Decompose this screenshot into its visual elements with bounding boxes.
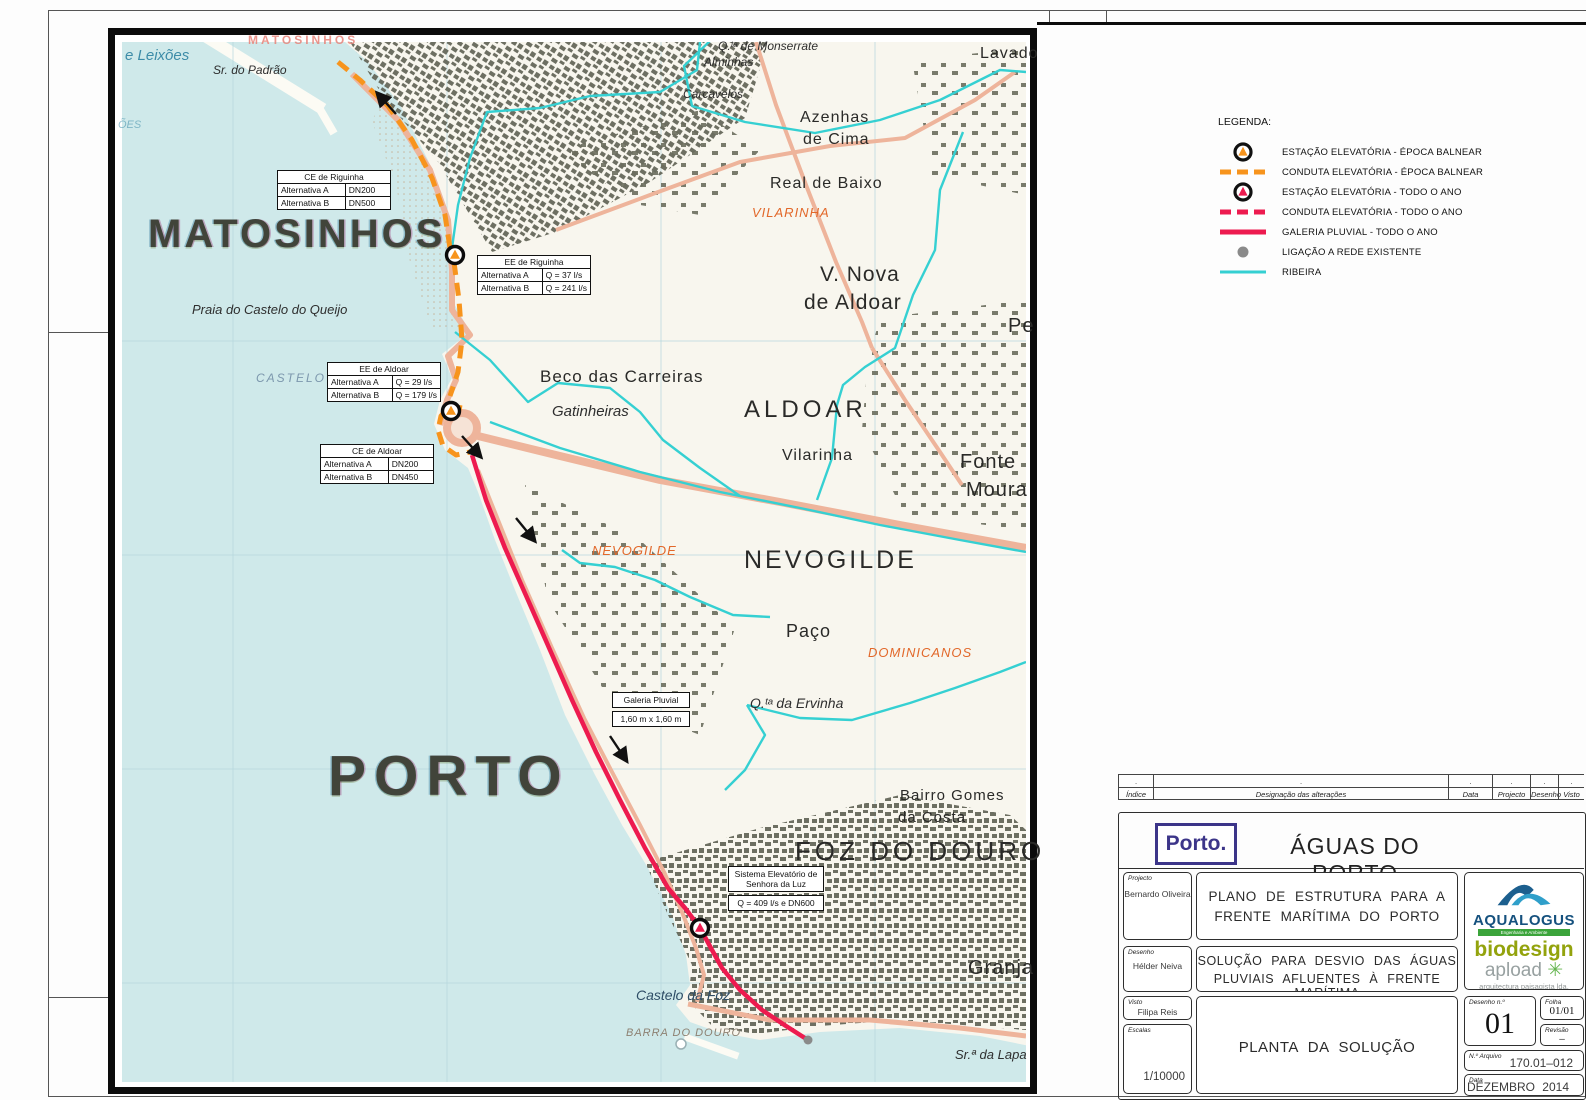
legend: LEGENDA: ESTAÇÃO ELEVATÓRIA - ÉPOCA BALN… [1218, 116, 1483, 282]
callout-key: Alternativa B [278, 197, 346, 210]
stream-icon [1218, 269, 1268, 275]
callout-title: EE de Aldoar [328, 363, 441, 376]
arquivo-value: 170.01–012 [1510, 1056, 1573, 1070]
callout-table: CE de RiguinhaAlternativa ADN200Alternat… [277, 170, 391, 210]
fold-mark-upper [48, 332, 108, 333]
aqualogus-logo: AQUALOGUS [1465, 913, 1583, 928]
map-label: Beco das Carreiras [540, 368, 704, 385]
main-title-line2: FRENTE MARÍTIMA DO PORTO [1197, 909, 1457, 924]
revision-dot-cell: . [1118, 774, 1153, 787]
fold-mark-lower [48, 997, 108, 998]
map-label: e Leixões [125, 48, 189, 63]
callout-key: Alternativa A [478, 269, 543, 282]
map-label: BARRA DO DOURO [626, 1028, 741, 1039]
apload-logo: apload ✳ [1465, 961, 1583, 982]
sheet-number-value: 01 [1465, 1007, 1535, 1041]
data-cell: Data DEZEMBRO 2014 [1464, 1074, 1584, 1096]
map-label: de Aldoar [804, 292, 902, 313]
projecto-cell: Projecto Bernardo Oliveira [1123, 872, 1192, 940]
map-label: Lavado [980, 46, 1039, 62]
porto-logo-text: Porto. [1166, 832, 1227, 856]
folha-cell: Folha 01/01 [1540, 996, 1584, 1020]
map-label: DOMINICANOS [868, 646, 972, 659]
map-callout: CE de AldoarAlternativa ADN200Alternativ… [320, 444, 434, 484]
callout-key: Alternativa B [321, 471, 389, 484]
sheet-number-label: Desenho n.º [1469, 999, 1505, 1006]
visto-cell: Visto Filipa Reis [1123, 996, 1192, 1020]
drawing-sheet: e LeixõesÕESSr. do PadrãoMATOSINHOSMATOS… [0, 0, 1586, 1100]
map-label: Praia do Castelo do Queijo [192, 303, 347, 316]
map-label: Alminhas [704, 56, 753, 68]
top-strip-thick-line [1037, 22, 1586, 25]
arquivo-cell: N.º Arquivo 170.01–012 [1464, 1050, 1584, 1071]
map-callout: Sistema Elevatório de Senhora da LuzQ = … [728, 866, 824, 914]
revision-dot-cell: . [1492, 774, 1530, 787]
legend-item-label: LIGAÇÃO A REDE EXISTENTE [1282, 247, 1421, 258]
revision-header-3: Projecto [1492, 787, 1530, 800]
existing-network-connection-icon [1218, 244, 1268, 260]
map-label: Castelo da Foz [636, 988, 730, 1002]
pump-station-allyear-icon [1218, 181, 1268, 203]
callout-value: DN200 [388, 458, 433, 471]
map-label: Carcavelos [683, 88, 743, 100]
projecto-label: Projecto [1128, 875, 1152, 882]
map-label: Fonte [960, 452, 1016, 472]
map-label: Q.ᵗᵃ da Ervinha [750, 696, 843, 710]
callout-key: Alternativa A [321, 458, 389, 471]
map-callout: CE de RiguinhaAlternativa ADN200Alternat… [277, 170, 391, 210]
revision-header-0: Índice [1118, 787, 1153, 800]
biodesign-logo: biodesign [1465, 938, 1583, 961]
legend-item: ESTAÇÃO ELEVATÓRIA - ÉPOCA BALNEAR [1218, 142, 1483, 162]
desenho-value: Hélder Neiva [1124, 961, 1191, 971]
legend-item-label: ESTAÇÃO ELEVATÓRIA - TODO O ANO [1282, 187, 1462, 198]
callout-title: EE de Riguinha [478, 256, 591, 269]
map-label: de Cima [803, 132, 870, 148]
callout-title: CE de Riguinha [278, 171, 391, 184]
map-label: VILARINHA [752, 206, 830, 219]
legend-item: CONDUTA ELEVATÓRIA - TODO O ANO [1218, 202, 1483, 222]
pressure-main-seasonal-icon [1218, 169, 1268, 175]
porto-logo: Porto. [1155, 823, 1237, 865]
map-label: Paço [786, 622, 831, 640]
callout-title: CE de Aldoar [321, 445, 434, 458]
map-label: Sr. do Padrão [213, 64, 287, 76]
map-label: PORTO [328, 748, 570, 805]
map-label: V. Nova [820, 264, 900, 285]
apload-asterisk-icon: ✳ [1542, 960, 1563, 981]
map-label: da Costa [898, 810, 966, 825]
callout-title: Galeria Pluvial [612, 692, 690, 708]
subtitle-cell: SOLUÇÃO PARA DESVIO DAS ÁGUAS PLUVIAIS A… [1196, 946, 1458, 992]
legend-item: GALERIA PLUVIAL - TODO O ANO [1218, 222, 1483, 242]
revision-dot-cell: . [1558, 774, 1584, 787]
map-label: Granja [968, 958, 1034, 978]
escalas-cell: Escalas 1/10000 [1123, 1024, 1192, 1094]
callout-key: Alternativa A [278, 184, 346, 197]
map-label: NEVOGILDE [744, 548, 917, 573]
main-title-line1: PLANO DE ESTRUTURA PARA A [1197, 889, 1457, 904]
revisao-value: – [1541, 1034, 1583, 1045]
storm-gallery-icon [1218, 229, 1268, 235]
legend-item-label: ESTAÇÃO ELEVATÓRIA - ÉPOCA BALNEAR [1282, 147, 1482, 158]
revisao-cell: Revisão – [1540, 1024, 1584, 1046]
escalas-label: Escalas [1128, 1027, 1151, 1034]
callout-value: DN450 [388, 471, 433, 484]
drawing-title: PLANTA DA SOLUÇÃO [1197, 1039, 1457, 1056]
revision-header-4: Desenho [1530, 787, 1558, 800]
callout-value: Q = 179 l/s [392, 389, 440, 402]
callout-title: Sistema Elevatório de Senhora da Luz [728, 866, 824, 892]
escala-value: 1/10000 [1143, 1071, 1185, 1083]
desenho-cell: Desenho Hélder Neiva [1123, 946, 1192, 992]
callout-table: EE de RiguinhaAlternativa AQ = 37 l/sAlt… [477, 255, 591, 295]
map-label: Pe [1008, 316, 1034, 336]
folha-value: 01/01 [1541, 1005, 1583, 1017]
visto-label: Visto [1128, 999, 1142, 1006]
drawing-title-cell: PLANTA DA SOLUÇÃO [1196, 996, 1458, 1094]
projecto-value: Bernardo Oliveira [1124, 889, 1191, 899]
map-callout: EE de AldoarAlternativa AQ = 29 l/sAlter… [327, 362, 441, 402]
pressure-main-allyear-icon [1218, 209, 1268, 215]
subtitle-line1: SOLUÇÃO PARA DESVIO DAS ÁGUAS [1197, 954, 1457, 968]
map-callout: EE de RiguinhaAlternativa AQ = 37 l/sAlt… [477, 255, 591, 295]
apload-tagline: arquitectura paisagista lda. [1465, 982, 1583, 990]
map-label: Vilarinha [782, 448, 853, 464]
subtitle-line2: PLUVIAIS AFLUENTES À FRENTE MARÍTIMA [1197, 972, 1457, 992]
aqualogus-arch-icon [1489, 876, 1559, 908]
revision-dot-cell: . [1448, 774, 1492, 787]
callout-table: EE de AldoarAlternativa AQ = 29 l/sAlter… [327, 362, 441, 402]
map-label: MATOSINHOS [248, 34, 358, 46]
map-label: Azenhas [800, 110, 869, 126]
map-callout: Galeria Pluvial1,60 m x 1,60 m [612, 692, 690, 730]
callout-value: Q = 37 l/s [542, 269, 590, 282]
desenho-label: Desenho [1128, 949, 1154, 956]
legend-title: LEGENDA: [1218, 116, 1483, 128]
revision-header-1: Designação das alterações [1153, 787, 1448, 800]
legend-item-label: GALERIA PLUVIAL - TODO O ANO [1282, 227, 1438, 238]
visto-value: Filipa Reis [1124, 1007, 1191, 1017]
callout-key: Alternativa A [328, 376, 393, 389]
callout-key: Alternativa B [328, 389, 393, 402]
callout-value: 1,60 m x 1,60 m [612, 711, 690, 727]
sheet-number-cell: Desenho n.º 01 [1464, 996, 1536, 1046]
map-label: Sr.ª da Lapa [955, 1048, 1027, 1061]
revision-dot-cell: . [1153, 774, 1448, 787]
consultant-logos-cell: AQUALOGUS Engenharia e Ambiente biodesig… [1464, 872, 1584, 990]
map-label: ALDOAR [744, 398, 867, 422]
callout-value: Q = 409 l/s e DN600 [728, 895, 824, 911]
sheet-left-margin-line [48, 10, 49, 1097]
map-label: Q.ᵗᵃ de Monserrate [718, 40, 818, 52]
map-label: MATOSINHOS [148, 214, 445, 254]
callout-value: Q = 241 l/s [542, 282, 590, 295]
revisao-label: Revisão [1545, 1027, 1568, 1034]
map-label: CASTELO [256, 372, 326, 384]
map-label: NEVOGILDE [592, 544, 677, 557]
callout-value: DN200 [345, 184, 390, 197]
sheet-top-line [48, 10, 1586, 11]
callout-value: DN500 [345, 197, 390, 210]
data-value: DEZEMBRO 2014 [1467, 1080, 1569, 1094]
map-label: Moura [966, 480, 1028, 500]
legend-item: CONDUTA ELEVATÓRIA - ÉPOCA BALNEAR [1218, 162, 1483, 182]
revision-dot-cell: . [1530, 774, 1558, 787]
legend-item-label: RIBEIRA [1282, 267, 1321, 278]
pump-station-seasonal-icon [1218, 141, 1268, 163]
aqualogus-tagline: Engenharia e Ambiente [1478, 929, 1570, 936]
callout-key: Alternativa B [478, 282, 543, 295]
legend-item: LIGAÇÃO A REDE EXISTENTE [1218, 242, 1483, 262]
map-label: FOZ DO DOURO [795, 838, 1045, 864]
map-label: Gatinheiras [552, 404, 629, 419]
revision-header-5: Visto [1558, 787, 1584, 800]
callout-table: CE de AldoarAlternativa ADN200Alternativ… [320, 444, 434, 484]
map-label: Bairro Gomes [900, 788, 1005, 803]
legend-item-label: CONDUTA ELEVATÓRIA - TODO O ANO [1282, 207, 1463, 218]
revision-header-2: Data [1448, 787, 1492, 800]
main-title-cell: PLANO DE ESTRUTURA PARA A FRENTE MARÍTIM… [1196, 872, 1458, 940]
legend-item: RIBEIRA [1218, 262, 1483, 282]
arquivo-label: N.º Arquivo [1469, 1053, 1501, 1060]
legend-item: ESTAÇÃO ELEVATÓRIA - TODO O ANO [1218, 182, 1483, 202]
map-label: ÕES [118, 120, 141, 131]
map-label: Real de Baixo [770, 176, 883, 192]
callout-value: Q = 29 l/s [392, 376, 440, 389]
legend-item-label: CONDUTA ELEVATÓRIA - ÉPOCA BALNEAR [1282, 167, 1483, 178]
